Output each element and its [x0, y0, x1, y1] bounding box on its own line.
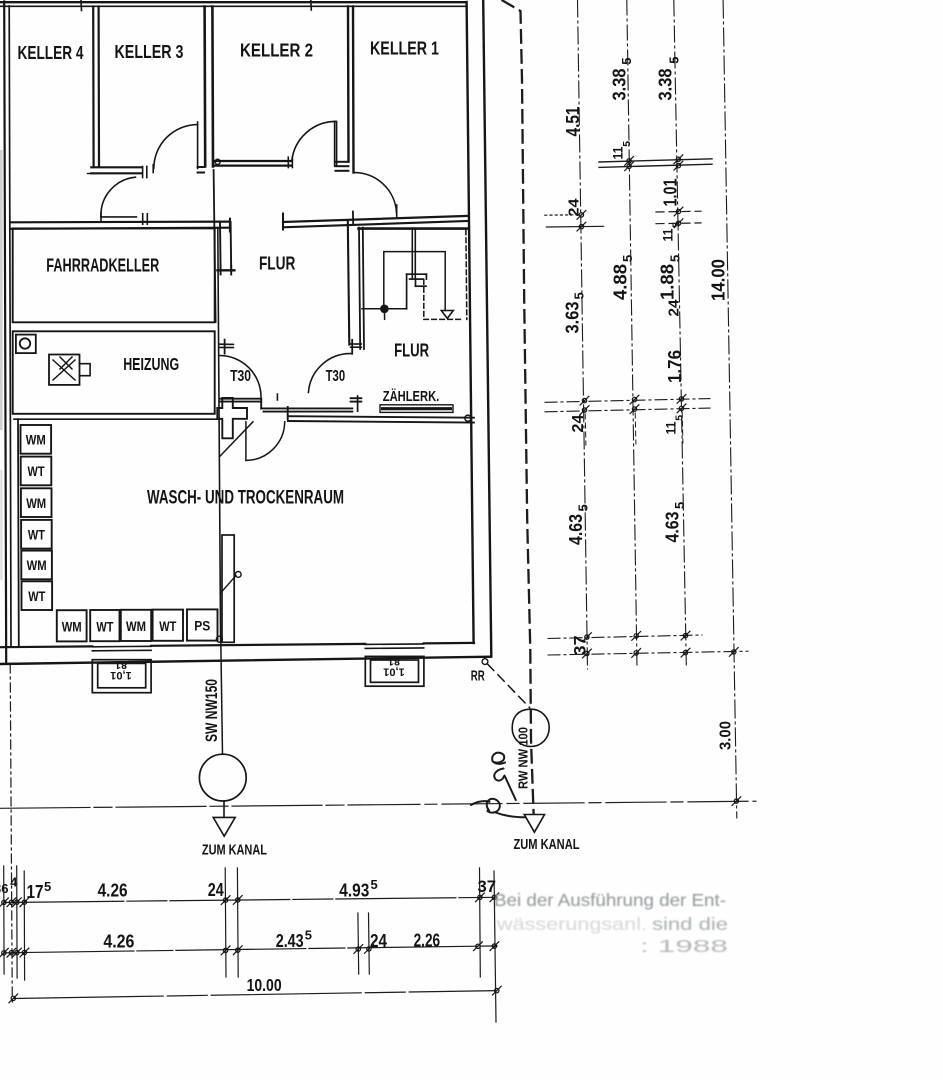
svg-text:2.43: 2.43 [276, 931, 304, 951]
svg-text:HEIZUNG: HEIZUNG [123, 354, 179, 374]
svg-text:5: 5 [44, 879, 51, 894]
svg-text:1.88: 1.88 [657, 264, 678, 300]
svg-text:ZUM KANAL: ZUM KANAL [514, 836, 580, 853]
svg-text:4.26: 4.26 [103, 931, 134, 951]
svg-text:ZÄHLERK.: ZÄHLERK. [383, 388, 440, 405]
svg-text:WM: WM [26, 433, 46, 448]
svg-text:4: 4 [10, 876, 17, 890]
svg-text:81: 81 [388, 655, 400, 667]
svg-text:5: 5 [572, 292, 587, 299]
svg-text:KELLER 1: KELLER 1 [370, 38, 439, 59]
svg-text:24: 24 [666, 299, 683, 317]
svg-text:81: 81 [115, 659, 127, 671]
svg-text:FLUR: FLUR [259, 254, 296, 274]
svg-text:5: 5 [305, 928, 312, 943]
svg-text:WASCH- UND TROCKENRAUM: WASCH- UND TROCKENRAUM [147, 488, 344, 509]
svg-text:WM: WM [27, 558, 47, 573]
svg-text:ZUM KANAL: ZUM KANAL [202, 841, 267, 858]
svg-text:FLUR: FLUR [394, 341, 429, 361]
svg-text:WT: WT [96, 619, 114, 634]
svg-text:WM: WM [126, 619, 146, 634]
svg-text:24: 24 [570, 414, 587, 432]
svg-text:: 1988: : 1988 [640, 936, 728, 956]
svg-text:4.63: 4.63 [566, 514, 586, 545]
svg-text:5: 5 [620, 255, 635, 262]
svg-text:T30: T30 [326, 368, 346, 385]
svg-text:5: 5 [576, 504, 591, 511]
svg-text:17: 17 [27, 882, 44, 902]
svg-text:WT: WT [159, 619, 177, 634]
svg-text:5: 5 [619, 58, 634, 65]
svg-text:4.51: 4.51 [562, 107, 583, 137]
svg-text:5: 5 [621, 141, 633, 147]
svg-text:WM: WM [26, 496, 46, 511]
svg-text:RW NW 100: RW NW 100 [516, 727, 531, 789]
svg-text:KELLER 4: KELLER 4 [18, 42, 85, 63]
svg-text:KELLER 3: KELLER 3 [115, 41, 184, 62]
svg-text:11: 11 [610, 146, 626, 159]
svg-text:5: 5 [667, 57, 682, 64]
svg-text:5: 5 [668, 255, 683, 262]
svg-text:1.76: 1.76 [664, 350, 685, 383]
svg-text:sind die: sind die [652, 914, 728, 934]
svg-text:5: 5 [672, 502, 687, 509]
svg-text:WT: WT [28, 589, 46, 604]
svg-text:24: 24 [208, 880, 224, 900]
svg-text:KELLER 2: KELLER 2 [240, 40, 313, 61]
svg-text:24: 24 [566, 199, 582, 217]
svg-text:WM: WM [62, 620, 82, 635]
svg-text:4.26: 4.26 [98, 881, 128, 901]
svg-text:14.00: 14.00 [708, 259, 729, 301]
svg-text:5: 5 [371, 877, 378, 892]
svg-text:4.88: 4.88 [610, 264, 631, 300]
svg-text:PS: PS [194, 619, 210, 634]
svg-text:4.63: 4.63 [663, 512, 683, 543]
svg-text:WT: WT [28, 527, 46, 542]
svg-text:WT: WT [28, 464, 46, 479]
svg-text:5: 5 [673, 415, 685, 421]
svg-text:3.00: 3.00 [718, 721, 735, 750]
svg-text:24: 24 [370, 931, 387, 951]
svg-text:T30: T30 [230, 368, 251, 385]
svg-text:11: 11 [660, 228, 676, 241]
svg-text:10.00: 10.00 [247, 975, 282, 995]
svg-text:1.01: 1.01 [660, 179, 681, 207]
svg-text:FAHRRADKELLER: FAHRRADKELLER [46, 255, 159, 276]
svg-text:wässerungsanl.: wässerungsanl. [496, 914, 647, 934]
svg-text:36: 36 [0, 881, 8, 896]
svg-text:4.93: 4.93 [339, 881, 369, 901]
svg-text:Bei der Ausführung der Ent-: Bei der Ausführung der Ent- [494, 890, 726, 910]
svg-text:SW NW150: SW NW150 [203, 679, 221, 742]
svg-text:3.38: 3.38 [609, 69, 630, 101]
svg-text:5: 5 [670, 222, 682, 228]
svg-text:RR: RR [471, 668, 485, 684]
svg-text:2.26: 2.26 [414, 931, 441, 951]
svg-text:3.38: 3.38 [655, 69, 676, 101]
svg-text:11: 11 [663, 421, 679, 434]
svg-text:37: 37 [571, 636, 590, 656]
svg-text:3.63: 3.63 [563, 302, 583, 334]
